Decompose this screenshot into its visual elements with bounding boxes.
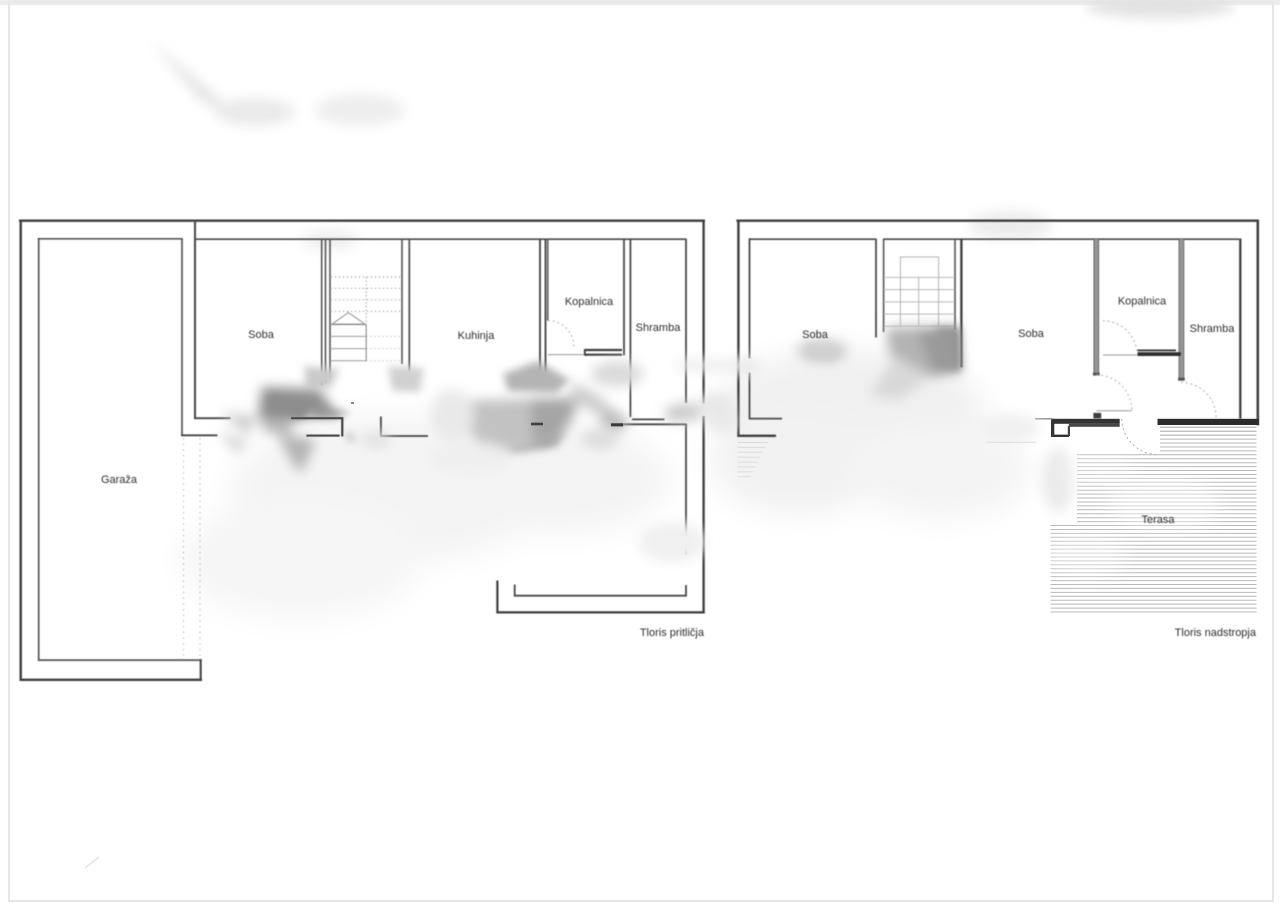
svg-text:Soba: Soba	[1018, 328, 1045, 340]
svg-text:Soba: Soba	[802, 329, 829, 341]
svg-text:Garaža: Garaža	[101, 474, 138, 486]
svg-text:Soba: Soba	[248, 329, 275, 341]
svg-text:Tloris nadstropja: Tloris nadstropja	[1175, 627, 1257, 639]
svg-text:Shramba: Shramba	[636, 322, 682, 334]
svg-text:Tloris pritličja: Tloris pritličja	[640, 627, 705, 639]
svg-text:Kopalnica: Kopalnica	[1118, 296, 1167, 308]
svg-text:Shramba: Shramba	[1190, 323, 1236, 335]
svg-text:Kopalnica: Kopalnica	[565, 296, 614, 308]
svg-text:Kuhinja: Kuhinja	[458, 330, 496, 342]
svg-text:Terasa: Terasa	[1141, 514, 1175, 526]
